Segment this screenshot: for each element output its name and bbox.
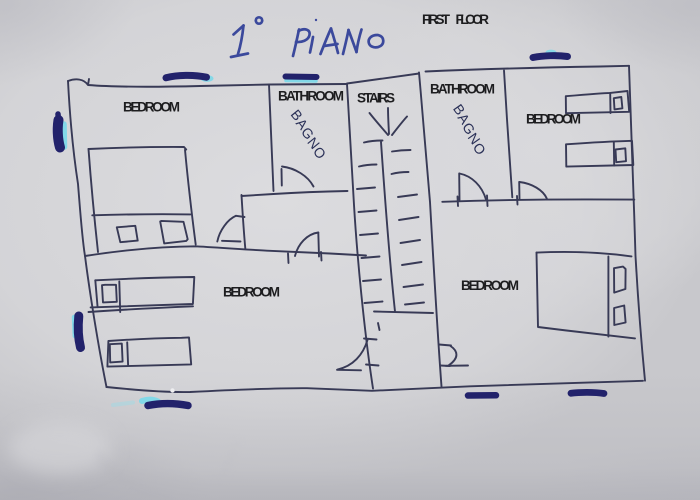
svg-text:FIRST: FIRST [422,12,451,27]
svg-text:BATHROOM: BATHROOM [278,89,344,104]
svg-text:BATHROOM: BATHROOM [430,82,495,97]
svg-text:BEDROOM: BEDROOM [526,112,581,127]
svg-text:BEDROOM: BEDROOM [223,285,280,300]
svg-text:BEDROOM: BEDROOM [123,100,180,115]
svg-text:FLOOR: FLOOR [456,12,490,27]
svg-text:BEDROOM: BEDROOM [461,278,519,293]
svg-text:STAIRS: STAIRS [357,91,395,106]
